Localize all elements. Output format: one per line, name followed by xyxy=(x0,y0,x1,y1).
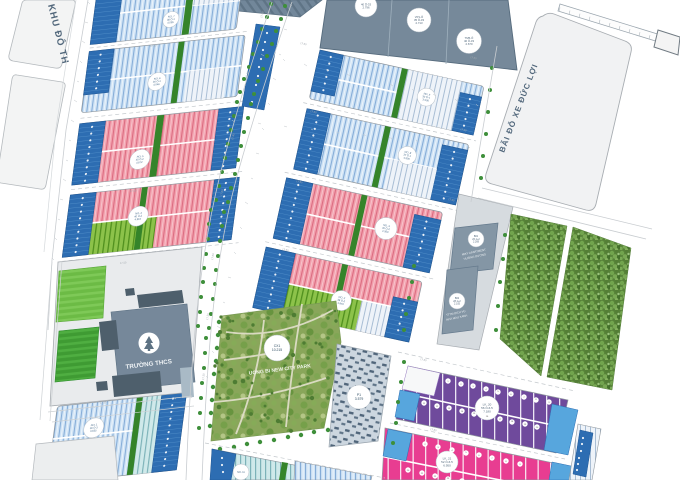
svg-text:6.950: 6.950 xyxy=(443,464,451,468)
svg-text:17.50: 17.50 xyxy=(140,116,147,121)
svg-text:2.796: 2.796 xyxy=(363,6,370,10)
svg-text:17.50: 17.50 xyxy=(150,43,157,48)
svg-text:4.046: 4.046 xyxy=(153,82,161,87)
svg-text:4.095: 4.095 xyxy=(167,20,175,25)
svg-text:2.269: 2.269 xyxy=(473,241,480,244)
svg-text:3.835: 3.835 xyxy=(90,428,98,433)
svg-text:17.50: 17.50 xyxy=(201,373,206,380)
svg-text:2.713: 2.713 xyxy=(416,21,423,25)
svg-text:NO..11: NO..11 xyxy=(237,471,245,474)
svg-text:2.105: 2.105 xyxy=(454,303,461,306)
svg-text:17.50: 17.50 xyxy=(120,260,127,265)
svg-text:7.180: 7.180 xyxy=(483,410,491,414)
svg-text:3.579: 3.579 xyxy=(355,397,364,401)
svg-text:17.50: 17.50 xyxy=(130,188,137,193)
svg-text:10.215: 10.215 xyxy=(272,348,282,352)
svg-text:2.670: 2.670 xyxy=(466,42,473,46)
svg-text:4.872: 4.872 xyxy=(136,160,144,165)
svg-text:4.910: 4.910 xyxy=(134,217,142,222)
